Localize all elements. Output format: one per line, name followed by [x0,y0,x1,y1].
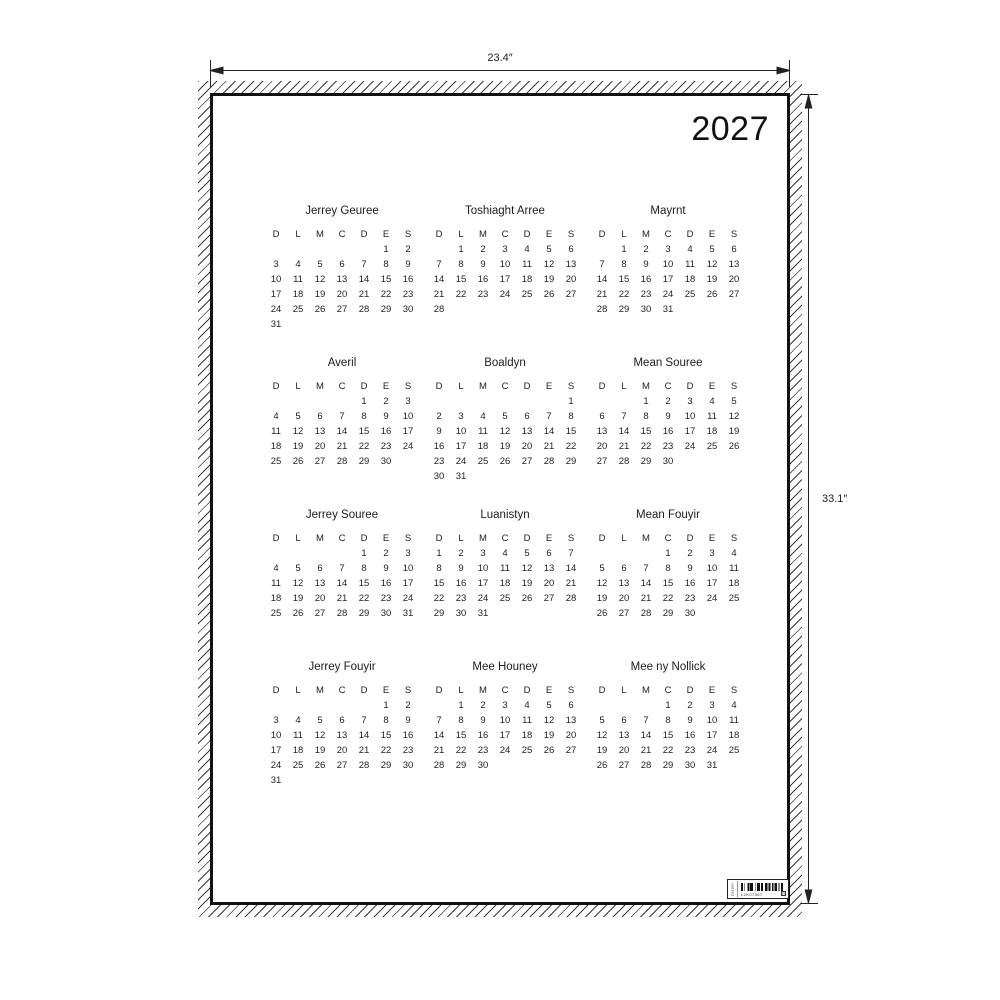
date-cell: 8 [375,713,397,728]
date-cell: 5 [538,242,560,257]
day-header: E [375,683,397,698]
date-cell: 22 [560,439,582,454]
month-days-grid: DLMCDES123456789101112131415161718192021… [265,379,419,469]
date-cell: 1 [560,394,582,409]
date-cell: 7 [635,561,657,576]
date-cell: 11 [265,424,287,439]
day-header: L [287,227,309,242]
month-name: Boaldyn [428,356,582,371]
date-cell: 12 [309,272,331,287]
date-cell: 16 [375,424,397,439]
date-cell: 20 [613,591,635,606]
date-cell: 21 [613,439,635,454]
date-cell: 28 [635,758,657,773]
date-cell: 14 [538,424,560,439]
day-header: L [450,683,472,698]
date-cell: 9 [375,409,397,424]
day-header: E [701,531,723,546]
empty-cell [353,242,375,257]
date-cell: 6 [309,409,331,424]
day-header: S [723,683,745,698]
date-cell: 14 [635,728,657,743]
empty-cell [613,546,635,561]
date-cell: 15 [375,272,397,287]
date-cell: 12 [494,424,516,439]
date-cell: 10 [494,713,516,728]
date-cell: 25 [265,454,287,469]
day-header: C [331,227,353,242]
date-cell: 22 [353,439,375,454]
date-cell: 17 [679,424,701,439]
date-cell: 10 [397,561,419,576]
date-cell: 5 [723,394,745,409]
date-cell: 4 [723,698,745,713]
date-cell: 31 [657,302,679,317]
date-cell: 23 [397,743,419,758]
day-header: D [679,379,701,394]
date-cell: 19 [538,272,560,287]
month-name: Averil [265,356,419,371]
date-cell: 6 [613,561,635,576]
date-cell: 21 [428,743,450,758]
date-cell: 27 [309,454,331,469]
date-cell: 2 [472,698,494,713]
date-cell: 6 [591,409,613,424]
date-cell: 12 [701,257,723,272]
date-cell: 30 [450,606,472,621]
date-cell: 30 [428,469,450,484]
date-cell: 26 [591,606,613,621]
month-block: Mean FouyirDLMCDES1234567891011121314151… [591,508,745,660]
date-cell: 17 [450,439,472,454]
date-cell: 4 [287,713,309,728]
day-header: L [613,531,635,546]
day-header: C [657,379,679,394]
date-cell: 10 [472,561,494,576]
date-cell: 3 [450,409,472,424]
date-cell: 10 [701,561,723,576]
day-header: E [701,379,723,394]
day-header: L [450,227,472,242]
date-cell: 30 [635,302,657,317]
date-cell: 11 [701,409,723,424]
date-cell: 30 [397,758,419,773]
date-cell: 6 [516,409,538,424]
day-header: M [309,227,331,242]
date-cell: 18 [723,576,745,591]
arrow-left-icon [210,67,223,74]
day-header: S [723,531,745,546]
date-cell: 13 [516,424,538,439]
empty-cell [591,546,613,561]
date-cell: 22 [428,591,450,606]
day-header: M [309,379,331,394]
date-cell: 16 [397,728,419,743]
date-cell: 2 [472,242,494,257]
empty-cell [331,317,353,332]
date-cell: 26 [309,302,331,317]
date-cell: 5 [516,546,538,561]
day-header: D [353,379,375,394]
date-cell: 30 [657,454,679,469]
date-cell: 29 [635,454,657,469]
year-title: 2027 [691,110,769,149]
date-cell: 2 [679,698,701,713]
date-cell: 1 [353,394,375,409]
date-cell: 27 [538,591,560,606]
date-cell: 3 [679,394,701,409]
date-cell: 18 [472,439,494,454]
empty-cell [309,242,331,257]
empty-cell [516,302,538,317]
date-cell: 27 [723,287,745,302]
day-header: E [375,531,397,546]
day-header: D [353,531,375,546]
date-cell: 30 [472,758,494,773]
empty-cell [287,317,309,332]
date-cell: 2 [450,546,472,561]
date-cell: 3 [472,546,494,561]
date-cell: 24 [494,743,516,758]
month-block: Jerrey GeureeDLMCDES12345678910111213141… [265,204,419,356]
month-name: Mayrnt [591,204,745,219]
date-cell: 6 [613,713,635,728]
month-days-grid: DLMCDES123456789101112131415161718192021… [591,531,745,621]
date-cell: 22 [375,287,397,302]
day-header: D [428,379,450,394]
day-header: C [657,227,679,242]
empty-cell [591,394,613,409]
date-cell: 22 [353,591,375,606]
date-cell: 26 [701,287,723,302]
month-days-grid: DLMCDES123456789101112131415161718192021… [428,683,582,773]
date-cell: 27 [331,758,353,773]
date-cell: 26 [591,758,613,773]
day-header: S [560,531,582,546]
day-header: M [472,379,494,394]
empty-cell [560,302,582,317]
date-cell: 31 [265,317,287,332]
date-cell: 21 [635,591,657,606]
date-cell: 15 [450,728,472,743]
date-cell: 12 [287,424,309,439]
month-name: Mean Souree [591,356,745,371]
date-cell: 27 [613,606,635,621]
date-cell: 10 [450,424,472,439]
date-cell: 4 [265,561,287,576]
empty-cell [516,469,538,484]
date-cell: 2 [679,546,701,561]
month-block: Jerrey SoureeDLMCDES12345678910111213141… [265,508,419,660]
date-cell: 28 [613,454,635,469]
date-cell: 7 [613,409,635,424]
day-header: S [397,227,419,242]
date-cell: 3 [494,242,516,257]
day-header: C [494,683,516,698]
date-cell: 15 [375,728,397,743]
date-cell: 7 [331,561,353,576]
date-cell: 18 [265,439,287,454]
date-cell: 28 [591,302,613,317]
empty-cell [494,302,516,317]
month-block: Toshiaght ArreeDLMCDES123456789101112131… [428,204,582,356]
date-cell: 22 [657,591,679,606]
month-block: MayrntDLMCDES123456789101112131415161718… [591,204,745,356]
month-name: Jerrey Fouyir [265,660,419,675]
date-cell: 4 [516,698,538,713]
barcode-sticker: zazzle L2K07367 R [727,879,789,899]
empty-cell [397,317,419,332]
day-header: E [701,683,723,698]
date-cell: 31 [701,758,723,773]
date-cell: 28 [560,591,582,606]
empty-cell [287,546,309,561]
day-header: C [331,379,353,394]
day-header: L [287,531,309,546]
day-header: L [613,227,635,242]
height-dimension-label: 33.1″ [822,493,847,505]
date-cell: 9 [375,561,397,576]
date-cell: 14 [331,576,353,591]
day-header: S [397,683,419,698]
arrow-down-icon [805,890,812,903]
day-header: S [397,531,419,546]
empty-cell [309,394,331,409]
date-cell: 27 [560,743,582,758]
date-cell: 12 [538,713,560,728]
date-cell: 19 [723,424,745,439]
date-cell: 2 [397,698,419,713]
date-cell: 23 [428,454,450,469]
date-cell: 26 [287,454,309,469]
date-cell: 17 [701,728,723,743]
empty-cell [397,454,419,469]
date-cell: 10 [265,272,287,287]
empty-cell [353,317,375,332]
empty-cell [516,758,538,773]
date-cell: 11 [516,257,538,272]
date-cell: 11 [494,561,516,576]
empty-cell [723,302,745,317]
date-cell: 23 [375,439,397,454]
empty-cell [287,698,309,713]
empty-cell [428,242,450,257]
date-cell: 13 [560,713,582,728]
date-cell: 29 [560,454,582,469]
date-cell: 8 [353,561,375,576]
date-cell: 29 [657,758,679,773]
date-cell: 9 [450,561,472,576]
day-header: S [723,227,745,242]
day-header: L [613,379,635,394]
day-header: C [494,227,516,242]
date-cell: 30 [375,454,397,469]
date-cell: 21 [591,287,613,302]
date-cell: 10 [657,257,679,272]
date-cell: 15 [353,576,375,591]
date-cell: 19 [287,439,309,454]
day-header: M [635,227,657,242]
date-cell: 19 [287,591,309,606]
empty-cell [309,698,331,713]
empty-cell [472,394,494,409]
date-cell: 5 [701,242,723,257]
empty-cell [701,302,723,317]
day-header: D [516,379,538,394]
date-cell: 19 [591,591,613,606]
date-cell: 9 [657,409,679,424]
month-block: Mean SoureeDLMCDES1234567891011121314151… [591,356,745,508]
empty-cell [679,302,701,317]
date-cell: 22 [450,743,472,758]
date-cell: 23 [472,743,494,758]
date-cell: 28 [635,606,657,621]
day-header: D [265,531,287,546]
day-header: D [353,683,375,698]
date-cell: 18 [723,728,745,743]
date-cell: 4 [679,242,701,257]
date-cell: 15 [560,424,582,439]
date-cell: 20 [309,439,331,454]
date-cell: 14 [428,728,450,743]
day-header: E [538,227,560,242]
date-cell: 17 [265,743,287,758]
date-cell: 11 [265,576,287,591]
date-cell: 18 [287,287,309,302]
empty-cell [287,773,309,788]
empty-cell [635,698,657,713]
month-days-grid: DLMCDES123456789101112131415161718192021… [265,227,419,332]
empty-cell [472,469,494,484]
month-days-grid: DLMCDES123456789101112131415161718192021… [428,379,582,484]
date-cell: 18 [287,743,309,758]
date-cell: 25 [287,758,309,773]
date-cell: 13 [613,576,635,591]
date-cell: 21 [331,591,353,606]
date-cell: 6 [331,713,353,728]
day-header: S [723,379,745,394]
date-cell: 28 [353,758,375,773]
empty-cell [516,606,538,621]
date-cell: 29 [353,454,375,469]
date-cell: 28 [538,454,560,469]
date-cell: 27 [591,454,613,469]
date-cell: 4 [494,546,516,561]
month-name: Luanistyn [428,508,582,523]
empty-cell [701,606,723,621]
date-cell: 5 [287,561,309,576]
date-cell: 23 [679,591,701,606]
date-cell: 6 [309,561,331,576]
date-cell: 21 [331,439,353,454]
date-cell: 13 [309,424,331,439]
date-cell: 1 [375,698,397,713]
date-cell: 27 [516,454,538,469]
day-header: E [701,227,723,242]
date-cell: 18 [679,272,701,287]
empty-cell [494,469,516,484]
date-cell: 28 [331,606,353,621]
day-header: M [635,531,657,546]
date-cell: 29 [450,758,472,773]
date-cell: 1 [450,698,472,713]
date-cell: 23 [397,287,419,302]
date-cell: 1 [428,546,450,561]
date-cell: 8 [560,409,582,424]
date-cell: 24 [265,758,287,773]
date-cell: 6 [331,257,353,272]
date-cell: 19 [538,728,560,743]
day-header: C [494,531,516,546]
date-cell: 25 [723,743,745,758]
month-name: Jerrey Geuree [265,204,419,219]
empty-cell [265,242,287,257]
empty-cell [331,394,353,409]
date-cell: 7 [591,257,613,272]
empty-cell [450,302,472,317]
empty-cell [450,394,472,409]
empty-cell [265,394,287,409]
date-cell: 22 [613,287,635,302]
date-cell: 19 [309,743,331,758]
date-cell: 5 [309,713,331,728]
date-cell: 3 [701,546,723,561]
date-cell: 17 [494,272,516,287]
date-cell: 23 [375,591,397,606]
empty-cell [538,302,560,317]
empty-cell [613,698,635,713]
empty-cell [472,302,494,317]
date-cell: 1 [657,546,679,561]
date-cell: 12 [591,728,613,743]
empty-cell [591,698,613,713]
date-cell: 4 [265,409,287,424]
date-cell: 13 [331,272,353,287]
date-cell: 6 [723,242,745,257]
month-days-grid: DLMCDES123456789101112131415161718192021… [591,379,745,469]
sticker-divider [737,881,738,897]
date-cell: 11 [679,257,701,272]
sticker-corner-mark: R [781,891,786,896]
mockup-canvas: 23.4″ 33.1″ 2027 Jerrey GeureeDLMCDES123… [0,0,1000,1000]
date-cell: 5 [538,698,560,713]
date-cell: 12 [516,561,538,576]
month-name: Jerrey Souree [265,508,419,523]
day-header: D [428,683,450,698]
date-cell: 17 [701,576,723,591]
day-header: D [591,531,613,546]
date-cell: 24 [397,591,419,606]
date-cell: 25 [723,591,745,606]
date-cell: 6 [560,242,582,257]
empty-cell [331,698,353,713]
date-cell: 26 [538,287,560,302]
date-cell: 16 [450,576,472,591]
empty-cell [265,698,287,713]
empty-cell [679,454,701,469]
month-block: BoaldynDLMCDES12345678910111213141516171… [428,356,582,508]
day-header: E [538,531,560,546]
day-header: S [560,683,582,698]
date-cell: 24 [397,439,419,454]
arrow-up-icon [805,95,812,108]
date-cell: 30 [397,302,419,317]
month-days-grid: DLMCDES123456789101112131415161718192021… [265,683,419,788]
date-cell: 1 [375,242,397,257]
month-days-grid: DLMCDES123456789101112131415161718192021… [265,531,419,621]
date-cell: 23 [657,439,679,454]
empty-cell [331,773,353,788]
